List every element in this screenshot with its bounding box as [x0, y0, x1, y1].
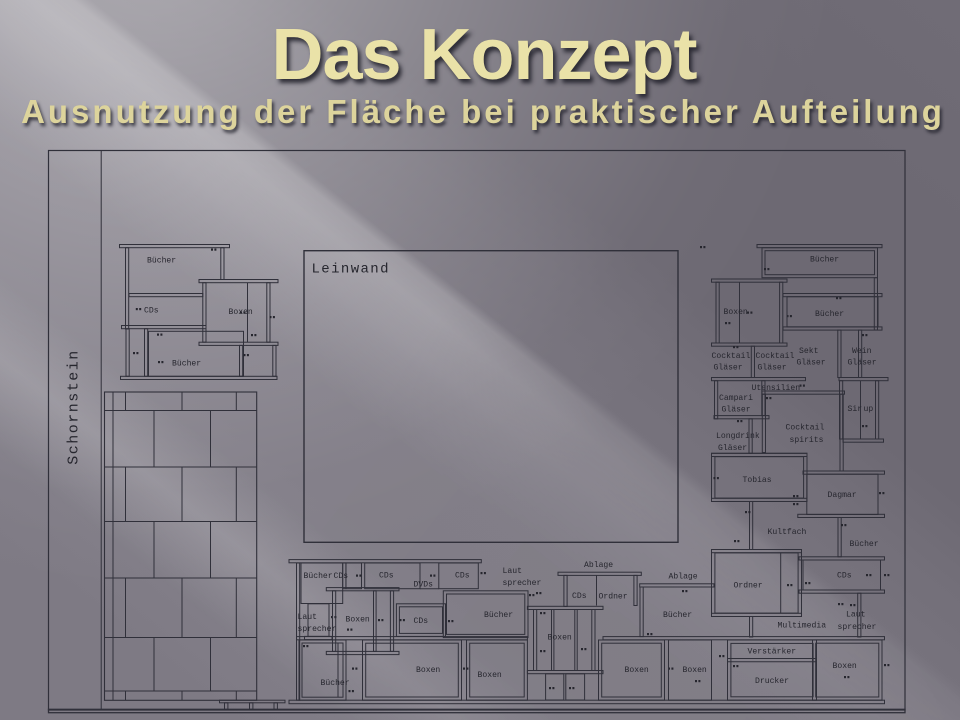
svg-text:Schornstein: Schornstein — [66, 349, 83, 465]
svg-text:Sir: Sir — [848, 405, 863, 414]
svg-text:Boxen: Boxen — [625, 666, 649, 675]
svg-text:Utensilien: Utensilien — [752, 384, 801, 393]
svg-text:Bücher: Bücher — [172, 360, 201, 369]
svg-text:Boxen: Boxen — [346, 616, 370, 625]
svg-text:Boxen: Boxen — [683, 666, 707, 675]
svg-text:Gläser: Gläser — [718, 444, 747, 453]
svg-text:CDs: CDs — [379, 572, 394, 581]
svg-text:Ordner: Ordner — [734, 582, 763, 591]
svg-text:Bücher: Bücher — [850, 540, 879, 549]
svg-text:Dagmar: Dagmar — [828, 491, 857, 500]
svg-text:Boxen: Boxen — [833, 662, 857, 671]
svg-text:Kultfach: Kultfach — [768, 528, 807, 537]
svg-text:Gläser: Gläser — [758, 364, 787, 373]
svg-text:Bücher: Bücher — [304, 572, 333, 581]
svg-text:CDs: CDs — [414, 617, 429, 626]
svg-text:Laut: Laut — [846, 611, 866, 620]
svg-text:Multimedia: Multimedia — [778, 622, 827, 631]
svg-text:Ablage: Ablage — [584, 561, 613, 570]
svg-text:sprecher: sprecher — [838, 623, 877, 632]
svg-text:Gläser: Gläser — [722, 406, 751, 415]
svg-text:sprecher: sprecher — [298, 625, 337, 634]
svg-text:Bücher: Bücher — [147, 257, 176, 266]
svg-text:Leinwand: Leinwand — [312, 262, 390, 278]
svg-text:CDs: CDs — [572, 592, 587, 601]
svg-text:CDs: CDs — [334, 572, 349, 581]
svg-text:Campari: Campari — [719, 394, 753, 403]
svg-text:Boxen: Boxen — [548, 634, 572, 643]
svg-text:Gläser: Gläser — [714, 364, 743, 373]
svg-text:Gläser: Gläser — [848, 359, 877, 368]
svg-text:Cocktail: Cocktail — [712, 352, 751, 361]
svg-text:Boxen: Boxen — [724, 308, 748, 317]
svg-text:Verstärker: Verstärker — [748, 648, 797, 657]
svg-text:Bücher: Bücher — [815, 310, 844, 319]
svg-text:Laut: Laut — [298, 613, 318, 622]
svg-text:CDs: CDs — [144, 307, 159, 316]
svg-text:up: up — [864, 405, 874, 414]
svg-text:Ordner: Ordner — [599, 593, 628, 602]
svg-text:Ablage: Ablage — [669, 573, 698, 582]
svg-text:Sekt: Sekt — [799, 347, 819, 356]
svg-text:Gläser: Gläser — [797, 359, 826, 368]
svg-text:Cocktail: Cocktail — [786, 424, 825, 433]
svg-text:Cocktail: Cocktail — [756, 352, 795, 361]
svg-text:spirits: spirits — [790, 436, 824, 445]
svg-text:Wein: Wein — [852, 347, 872, 356]
svg-text:Bücher: Bücher — [663, 611, 692, 620]
svg-text:Longdrink: Longdrink — [716, 432, 760, 441]
svg-text:Bücher: Bücher — [321, 679, 350, 688]
svg-text:Bücher: Bücher — [810, 256, 839, 265]
svg-text:Drucker: Drucker — [755, 677, 789, 686]
svg-text:CDs: CDs — [837, 572, 852, 581]
svg-text:Laut: Laut — [503, 567, 523, 576]
svg-text:Boxen: Boxen — [478, 671, 502, 680]
svg-text:Boxen: Boxen — [416, 666, 440, 675]
svg-text:CDs: CDs — [455, 572, 470, 581]
svg-text:Tobias: Tobias — [743, 476, 772, 485]
svg-text:Bücher: Bücher — [484, 611, 513, 620]
svg-text:DVDs: DVDs — [414, 581, 434, 590]
svg-text:sprecher: sprecher — [503, 579, 542, 588]
